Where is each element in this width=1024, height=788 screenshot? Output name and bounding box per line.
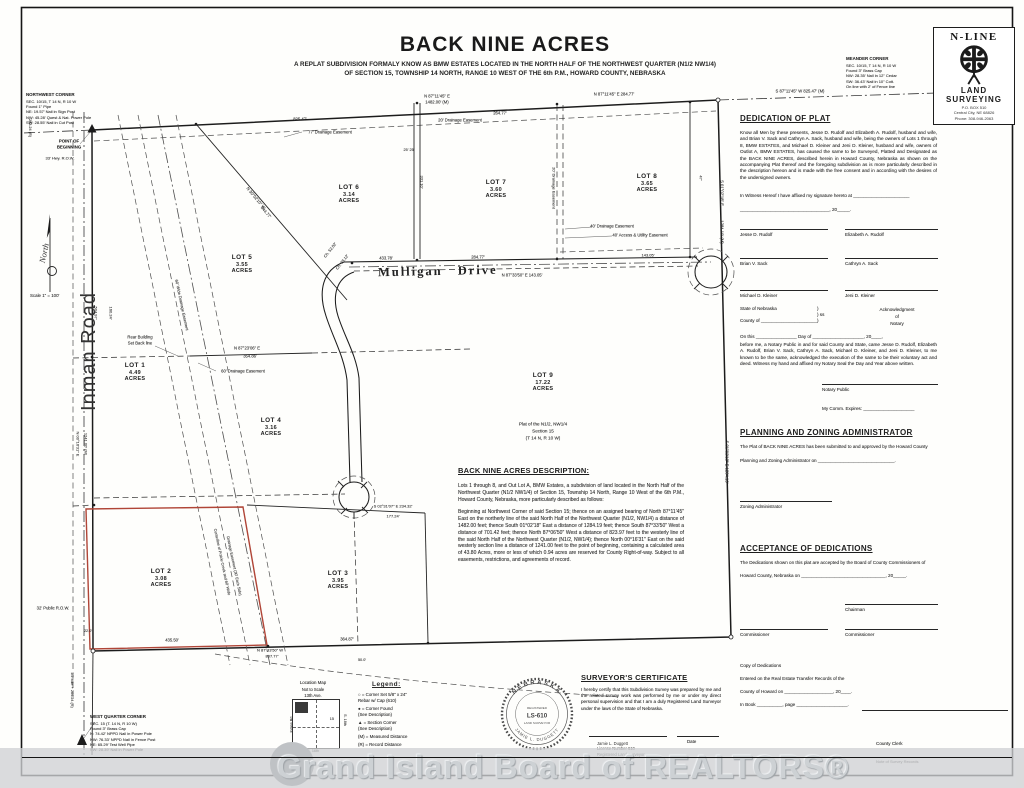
legend-item: ○ = Corner Set 5/8" x 24" Rebar w/ Cap (… xyxy=(358,692,458,703)
location-map-left-road: Inman Rd. xyxy=(290,715,294,732)
legend-heading: Legend: xyxy=(372,681,458,688)
signer-name: Brian V. Sack xyxy=(740,261,767,266)
notary-county: County of ______________________ xyxy=(740,318,817,323)
notary-state: State of Nebraska xyxy=(740,306,777,311)
planning-heading: PLANNING AND ZONING ADMINISTRATOR xyxy=(740,428,913,437)
comm-expires: My Comm. Expires: ____________________ xyxy=(822,406,914,411)
recording-line2: Entered on the Real Estate Transfer Reco… xyxy=(740,676,844,681)
signature-line xyxy=(740,290,828,291)
witness-line2: ___________________________________, 20_… xyxy=(740,207,851,212)
seal-registered: REGISTERED xyxy=(527,706,548,710)
commissioner-label: Commissioner xyxy=(740,632,769,637)
location-map-right-road: S. 16th xyxy=(343,714,347,726)
signature-line xyxy=(740,258,828,259)
scan-line xyxy=(22,757,1012,758)
surveyor-sig-line xyxy=(589,736,667,737)
zoning-administrator-label: Zoning Administrator xyxy=(740,504,782,509)
legend-item: ● = Corner Found (See Description) xyxy=(358,706,458,717)
location-map-title: Location Map xyxy=(300,680,326,685)
ack-line2: of xyxy=(862,314,932,319)
notary-paren: ) xyxy=(817,318,819,323)
notary-ss: ) ss xyxy=(817,312,824,317)
date-label: Date xyxy=(687,739,696,744)
acceptance-line1: The Dedications shown on this plat are a… xyxy=(740,560,925,565)
dedication-heading: DEDICATION OF PLAT xyxy=(740,114,830,123)
ack-line3: Notary xyxy=(862,321,932,326)
location-map-box: 15 xyxy=(292,699,340,749)
signer-name: Michael D. Kleiner xyxy=(740,293,777,298)
certificate-heading: SURVEYOR'S CERTIFICATE xyxy=(581,673,721,682)
notary-public-label: Notary Public xyxy=(822,387,849,392)
signer-name: Elizabeth A. Rudolf xyxy=(845,232,884,237)
chairman-label: Chairman xyxy=(845,607,865,612)
signature-line xyxy=(845,258,938,259)
notary-body: before me, a Notary Public in and for sa… xyxy=(740,342,937,368)
seal-land-surveyor: LAND SURVEYOR xyxy=(524,721,551,725)
zoning-sig-line xyxy=(740,501,832,502)
planning-line2: Planning and Zoning Administrator on ___… xyxy=(740,458,896,463)
signer-name: Jeni D. Kleiner xyxy=(845,293,875,298)
certificate-body: I hereby certify that this Subdivision S… xyxy=(581,687,721,712)
signature-line xyxy=(845,290,938,291)
legend-items: ○ = Corner Set 5/8" x 24" Rebar w/ Cap (… xyxy=(358,692,458,748)
acceptance-line2: Howard County, Nebraska on _____________… xyxy=(740,573,907,578)
recording-title: Copy of Dedications xyxy=(740,663,781,668)
plat-sheet: BACK NINE ACRES A REPLAT SUBDIVISION FOR… xyxy=(0,0,1024,788)
acceptance-heading: ACCEPTANCE OF DEDICATIONS xyxy=(740,544,873,553)
commissioner-label: Commissioner xyxy=(845,632,874,637)
recording-line3: County of Howard on ___________________,… xyxy=(740,689,852,694)
signature-line xyxy=(845,229,938,230)
notary-sig-line xyxy=(822,384,938,385)
legend-item: (M) = Measured Distance xyxy=(358,734,458,740)
legend-item: (R) = Record Distance xyxy=(358,742,458,748)
surveyor-seal: NEBRASKA JAMIE L. DUGGETT REGISTERED LS-… xyxy=(498,676,576,754)
ack-line1: Acknowledgment xyxy=(862,307,932,312)
legend-block: Legend: ○ = Corner Set 5/8" x 24" Rebar … xyxy=(358,681,458,750)
clerk-sig-line xyxy=(862,710,1008,711)
watermark-text: Grand Island Board of REALTORS® xyxy=(277,749,850,786)
signer-name: Jesse D. Rudolf xyxy=(740,232,772,237)
section-number: 15 xyxy=(330,717,334,721)
signer-name: Cathryn A. Sack xyxy=(845,261,878,266)
recording-line4: In Book __________, page _______________… xyxy=(740,702,849,707)
location-map-subtitle: Not to Scale xyxy=(302,687,324,692)
county-clerk-label: County Clerk xyxy=(876,741,903,746)
location-map-gridline xyxy=(316,700,317,748)
svg-text:NEBRASKA: NEBRASKA xyxy=(511,680,562,696)
right-column: DEDICATION OF PLAT Know all Men by these… xyxy=(0,0,1024,788)
seal-state: NEBRASKA xyxy=(511,680,562,696)
section-highlight xyxy=(295,702,308,713)
commissioner-sig-line xyxy=(845,629,938,630)
planning-line1: The Plat of BACK NINE ACRES has been sub… xyxy=(740,444,928,449)
notary-paren: ) xyxy=(817,306,819,311)
date-sig-line xyxy=(677,736,719,737)
certificate-block: SURVEYOR'S CERTIFICATE I hereby certify … xyxy=(581,673,721,712)
dedication-body: Know all Men by these presents, Jesse D.… xyxy=(740,130,937,181)
signature-line xyxy=(740,229,828,230)
chairman-sig-line xyxy=(845,604,938,605)
seal-number: LS-610 xyxy=(527,713,548,720)
commissioner-sig-line xyxy=(740,629,828,630)
location-map-avenue: 13th Ave. xyxy=(304,693,321,698)
legend-item: ▲ = Section Corner (See Description) xyxy=(358,720,458,731)
notary-date-line: On this ________________ Day of ________… xyxy=(740,334,883,339)
witness-line1: In Witness Hereof I have affixed my sign… xyxy=(740,193,910,198)
